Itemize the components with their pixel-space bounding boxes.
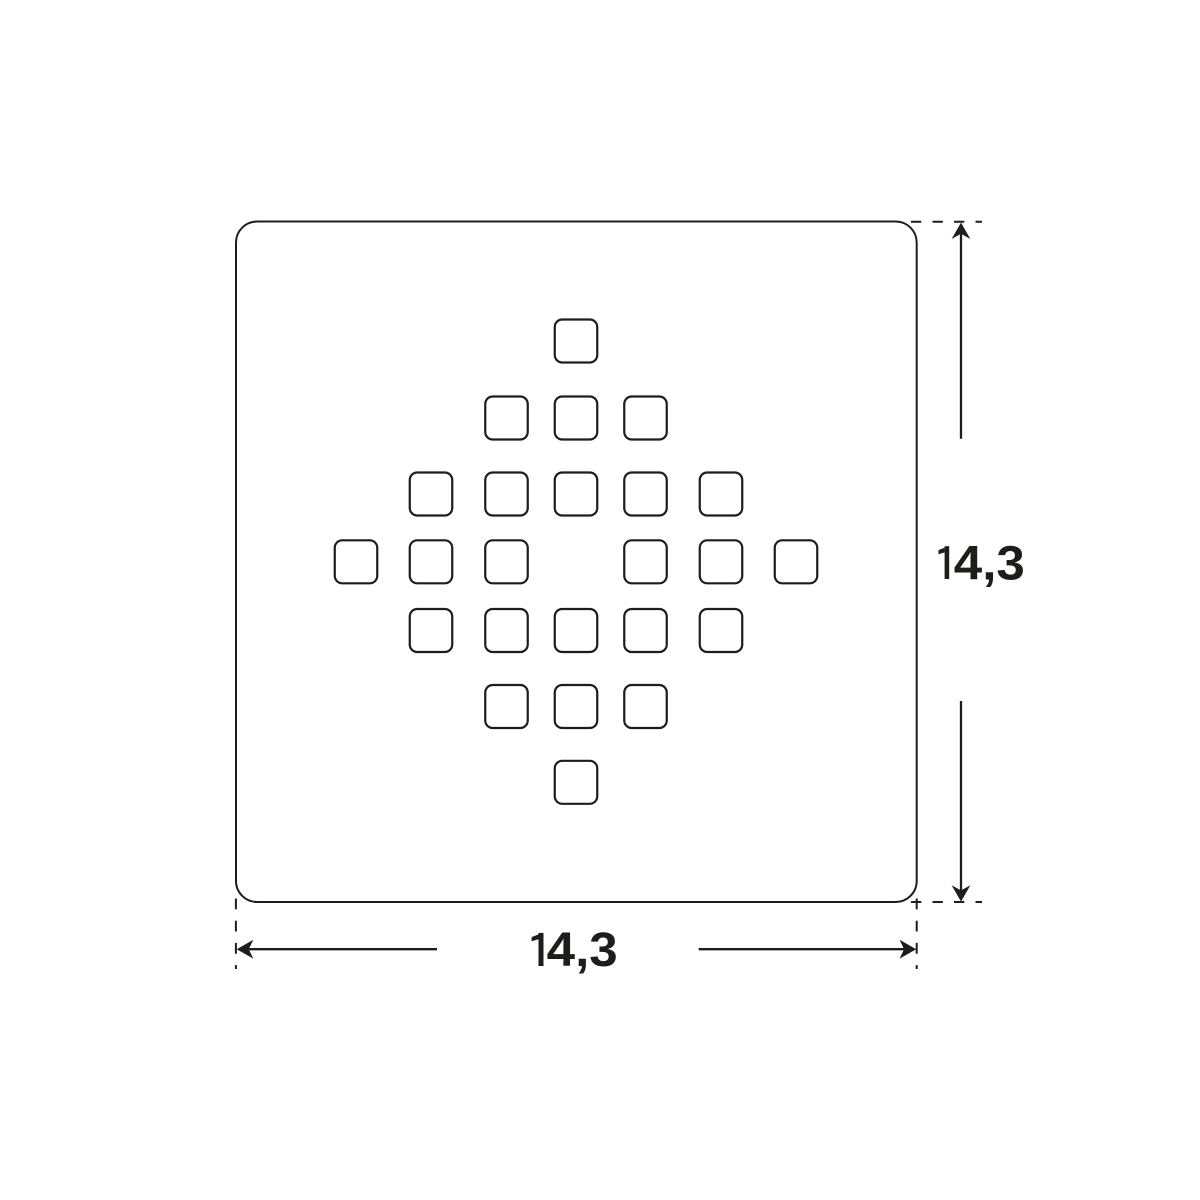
svg-text:4,3: 4,3 bbox=[547, 923, 618, 977]
svg-text:4,3: 4,3 bbox=[954, 536, 1025, 590]
